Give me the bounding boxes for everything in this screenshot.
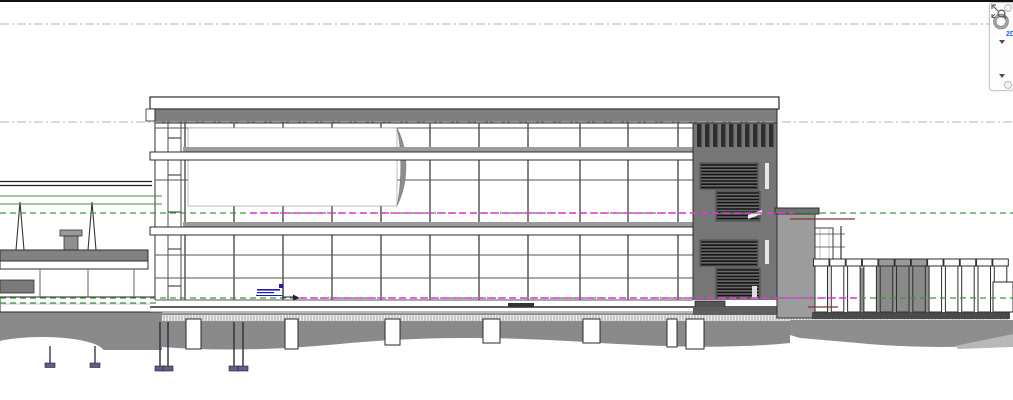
chevron-down-icon[interactable] [999,74,1005,78]
drawing-viewport: 2D [0,0,1013,400]
right-annex-colonnade [775,208,1013,319]
building-elevation [146,97,790,315]
chevron-down-icon[interactable] [999,40,1005,44]
wheel-2d-label: 2D [1006,31,1013,38]
elevation-drawing [0,0,1013,400]
left-walkway-structure [0,182,162,313]
zoom-icon [990,3,1008,21]
navigation-bar[interactable]: 2D [989,2,1013,91]
navbar-bottom-dot-icon [1004,81,1012,89]
ground-terrain [0,312,1013,371]
zoom-region-button[interactable] [991,50,1012,70]
